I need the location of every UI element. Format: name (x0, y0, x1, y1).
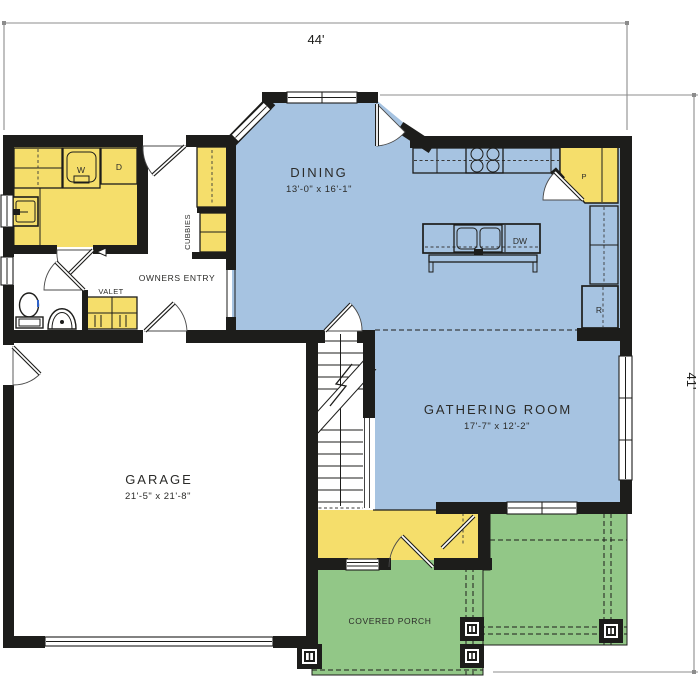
cubbies-label: CUBBIES (183, 214, 192, 250)
powder-room-fixtures (16, 293, 76, 329)
floor-plan-drawing: 44' 41' DINING 13'-0" x 16'-1" GATHERING… (0, 0, 700, 700)
powder-window (1, 257, 13, 285)
washer-label: W (77, 165, 85, 175)
porch-column (460, 644, 484, 668)
dryer-label: D (116, 162, 122, 172)
garage-entry-door (145, 303, 187, 331)
bay-top-window (287, 92, 357, 103)
height-dimension-label: 41' (684, 373, 699, 390)
gathering-right-window (619, 356, 632, 480)
garage-side-door (13, 347, 40, 385)
garage-label: GARAGE (125, 472, 193, 487)
laundry-window (1, 195, 13, 227)
dishwasher-label: DW (513, 236, 527, 246)
toilet (16, 293, 43, 328)
garage-size-label: 21'-5" x 21'-8" (125, 491, 191, 502)
valet-label: VALET (98, 287, 123, 296)
side-entry-door (143, 146, 185, 175)
cubbies-cabinet (197, 147, 228, 252)
porch-column (297, 644, 322, 669)
width-dimension-label: 44' (308, 32, 325, 47)
porch-column (599, 619, 623, 643)
dining-label: DINING (290, 165, 348, 180)
refrigerator-label: R (596, 305, 602, 315)
laundry-sink (13, 197, 38, 226)
pedestal-sink (48, 309, 76, 329)
garage-door-panel (45, 637, 273, 646)
pantry-label: P (581, 172, 586, 181)
covered-porch-label: COVERED PORCH (349, 616, 432, 626)
floor-plan-page: 44' 41' DINING 13'-0" x 16'-1" GATHERING… (0, 0, 700, 700)
dining-size-label: 13'-0" x 16'-1" (286, 184, 352, 195)
gathering-room-size-label: 17'-7" x 12'-2" (464, 421, 530, 432)
owners-entry-label: OWNERS ENTRY (139, 273, 215, 283)
gathering-bottom-window (507, 502, 577, 514)
valet-cabinet (87, 297, 137, 329)
gathering-room-label: GATHERING ROOM (424, 402, 572, 417)
foyer-window (346, 559, 379, 570)
porch-column (460, 617, 484, 641)
